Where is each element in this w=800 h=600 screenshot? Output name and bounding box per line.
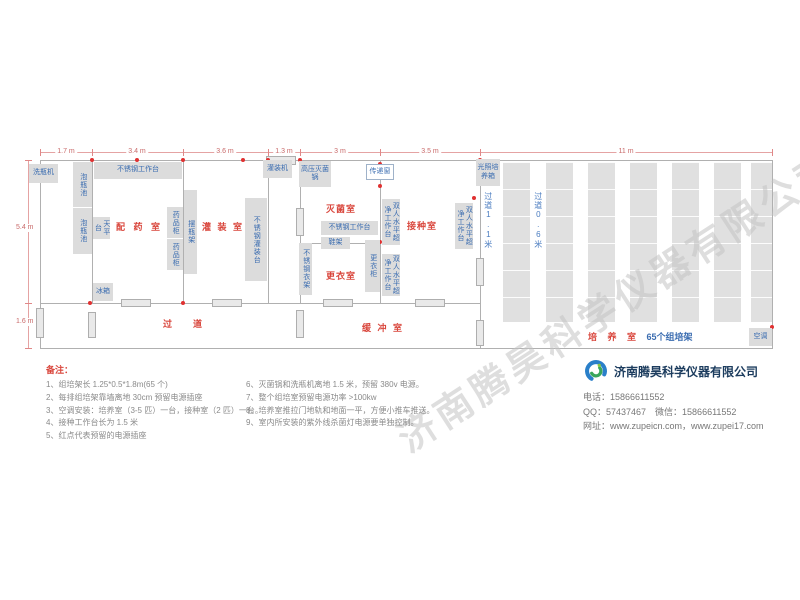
layout-drawing: 洗瓶机泡瓶池泡瓶池不锈钢工作台天平台药品柜药品柜冰箱摆瓶架灌装机不锈钢灌装台高压… <box>0 0 800 600</box>
balance-table: 天平台 <box>93 217 110 239</box>
dimension-line-top <box>40 152 772 153</box>
clean-bench-1: 双人水平超净工作台 <box>382 199 400 245</box>
dimension-label: 3.5 m <box>419 148 441 156</box>
room-label-filling: 灌 装 室 <box>202 220 244 233</box>
bottle-soak-pool-1: 泡瓶池 <box>73 162 92 207</box>
door <box>36 308 44 338</box>
dimension-tick <box>25 160 32 161</box>
dimension-label: 1.7 m <box>55 148 77 156</box>
note-line: 3、空调安装：培养室（3-5 匹）一台，接种室（2 匹）一台。 <box>46 405 246 418</box>
ss-filling-table: 不锈钢灌装台 <box>245 198 267 281</box>
note-line: 4、接种工作台长为 1.5 米 <box>46 417 246 430</box>
dimension-tick <box>25 303 32 304</box>
filling-machine-box: 灌装机 <box>263 160 292 178</box>
notes-column-1: 1、组培架长 1.25*0.5*1.8m(65 个)2、每排组培架靠墙离地 30… <box>46 379 246 443</box>
aisle-width-2: 过道0.6米 <box>533 192 542 249</box>
notes-column-2: 6、灭菌锅和洗瓶机离地 1.5 米，预留 380v 电源。7、整个组培室预留电源… <box>246 379 506 443</box>
fridge-box: 冰箱 <box>93 283 113 301</box>
dimension-tick <box>92 149 93 156</box>
autoclave-box: 高压灭菌锅 <box>299 161 331 187</box>
company-phone: 电话：15866611552 <box>583 390 793 405</box>
shoe-rack-box: 鞋架 <box>321 237 350 249</box>
note-line: 6、灭菌锅和洗瓶机离地 1.5 米，预留 380v 电源。 <box>246 379 506 392</box>
door <box>476 320 484 346</box>
dimension-tick <box>183 149 184 156</box>
clean-bench-3: 双人水平超净工作台 <box>382 254 400 296</box>
bottle-soak-pool-2: 泡瓶池 <box>73 208 92 254</box>
room-label-dispensing: 配 药 室 <box>116 220 163 233</box>
medicine-cabinet-1: 药品柜 <box>167 207 183 238</box>
company-websites: 网址：www.zupeicn.com，www.zupei17.com <box>583 419 793 434</box>
company-block: 济南腾昊科学仪器有限公司 电话：15866611552 QQ：57437467 … <box>583 358 793 434</box>
wall <box>772 160 773 349</box>
culture-rack <box>588 162 615 322</box>
culture-room-name: 培 养 室 <box>588 332 647 342</box>
door <box>212 299 242 307</box>
dimension-label: 1.3 m <box>273 148 295 156</box>
pass-window-box: 传递窗 <box>366 164 394 180</box>
bottle-rack-column: 摆瓶架 <box>184 190 197 274</box>
note-line: 2、每排组培架靠墙离地 30cm 预留电源插座 <box>46 392 246 405</box>
power-outlet-dot <box>472 196 476 200</box>
note-line: 5、红点代表预留的电源插座 <box>46 430 246 443</box>
note-line: 7、整个组培室预留电源功率 >100kw <box>246 392 506 405</box>
ss-worktable-left: 不锈钢工作台 <box>94 162 182 179</box>
room-label-buffer: 缓 冲 室 <box>362 321 404 334</box>
culture-rack <box>714 162 741 322</box>
culture-rack <box>630 162 657 322</box>
power-outlet-dot <box>88 301 92 305</box>
power-outlet-dot <box>181 301 185 305</box>
ss-clothes-rack: 不锈钢衣架 <box>299 243 312 295</box>
dimension-tick <box>380 149 381 156</box>
culture-rack <box>751 162 772 322</box>
dimension-tick <box>268 149 269 156</box>
power-outlet-dot <box>241 158 245 162</box>
dimension-tick <box>25 348 32 349</box>
door <box>88 312 96 338</box>
floor-plan: 洗瓶机泡瓶池泡瓶池不锈钢工作台天平台药品柜药品柜冰箱摆瓶架灌装机不锈钢灌装台高压… <box>0 0 800 600</box>
room-label-inoculation: 接种室 <box>407 219 437 232</box>
dimension-label: 3.6 m <box>214 148 236 156</box>
wall <box>380 160 381 304</box>
note-line: 8、培养室推拉门地轨和地面一平，方便小推车推送。 <box>246 405 506 418</box>
dimension-label: 3.4 m <box>126 148 148 156</box>
culture-rack-count: 65个组培架 <box>647 332 693 342</box>
dimension-tick <box>480 149 481 156</box>
door <box>296 208 304 236</box>
dimension-label: 11 m <box>616 148 635 156</box>
room-label-changing: 更衣室 <box>326 269 356 282</box>
company-logo <box>583 358 609 384</box>
culture-rack <box>503 162 530 322</box>
dimension-tick <box>40 149 41 156</box>
dimension-tick <box>300 149 301 156</box>
dimension-label: 5.4 m <box>14 224 36 232</box>
culture-rack <box>546 162 573 322</box>
company-name: 济南腾昊科学仪器有限公司 <box>614 363 758 380</box>
door <box>415 299 445 307</box>
wall <box>268 160 269 304</box>
company-qq-wechat: QQ：57437467 微信：15866611552 <box>583 405 793 420</box>
wardrobe-box: 更衣柜 <box>365 240 380 292</box>
door <box>121 299 151 307</box>
notes-section: 备注： 1、组培架长 1.25*0.5*1.8m(65 个)2、每排组培架靠墙离… <box>46 363 566 443</box>
wall <box>40 348 773 349</box>
dimension-tick <box>772 149 773 156</box>
door <box>323 299 353 307</box>
ss-worktable-mid: 不锈钢工作台 <box>321 221 378 235</box>
note-line: 9、室内所安装的紫外线杀菌灯电源要单独控制。 <box>246 417 506 430</box>
notes-title: 备注： <box>46 363 566 376</box>
clean-bench-2: 双人水平超净工作台 <box>455 203 473 249</box>
culture-room-label: 培 养 室 65个组培架 <box>588 330 693 343</box>
door <box>296 310 304 338</box>
air-conditioner-box: 空调 <box>749 328 772 346</box>
bottle-washer-box: 洗瓶机 <box>29 164 58 183</box>
wall <box>40 160 773 161</box>
culture-rack <box>672 162 699 322</box>
dimension-label: 1.6 m <box>14 318 36 326</box>
door <box>476 258 484 286</box>
medicine-cabinet-2: 药品柜 <box>167 239 183 270</box>
room-label-corridor: 过 道 <box>163 317 208 330</box>
dimension-label: 3 m <box>332 148 348 156</box>
light-incubator-box: 光照培养箱 <box>476 159 500 186</box>
note-line: 1、组培架长 1.25*0.5*1.8m(65 个) <box>46 379 246 392</box>
room-label-sterilization: 灭菌室 <box>326 202 356 215</box>
aisle-width-1: 过道1.1米 <box>483 192 492 249</box>
power-outlet-dot <box>378 184 382 188</box>
